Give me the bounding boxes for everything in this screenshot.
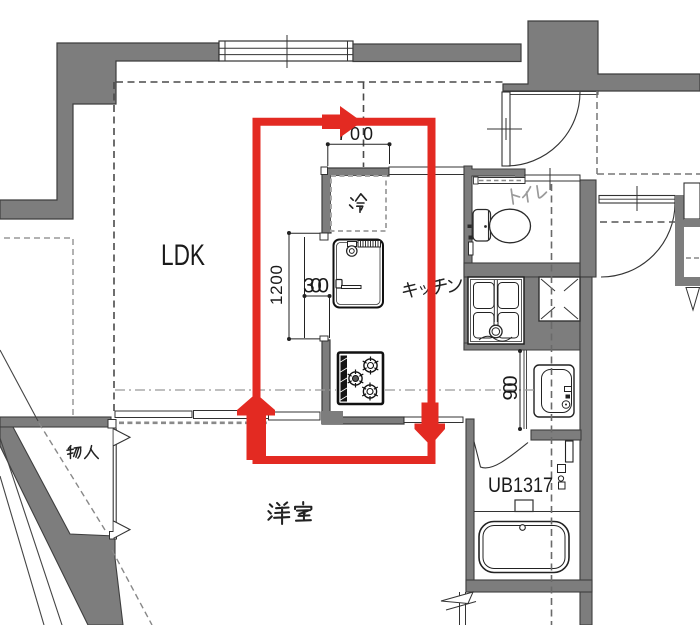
svg-text:LDK: LDK [161,239,205,272]
svg-text:300: 300 [303,275,329,298]
svg-text:900: 900 [500,376,522,401]
svg-text:1200: 1200 [267,265,286,305]
svg-text:UB1317: UB1317 [488,474,553,497]
